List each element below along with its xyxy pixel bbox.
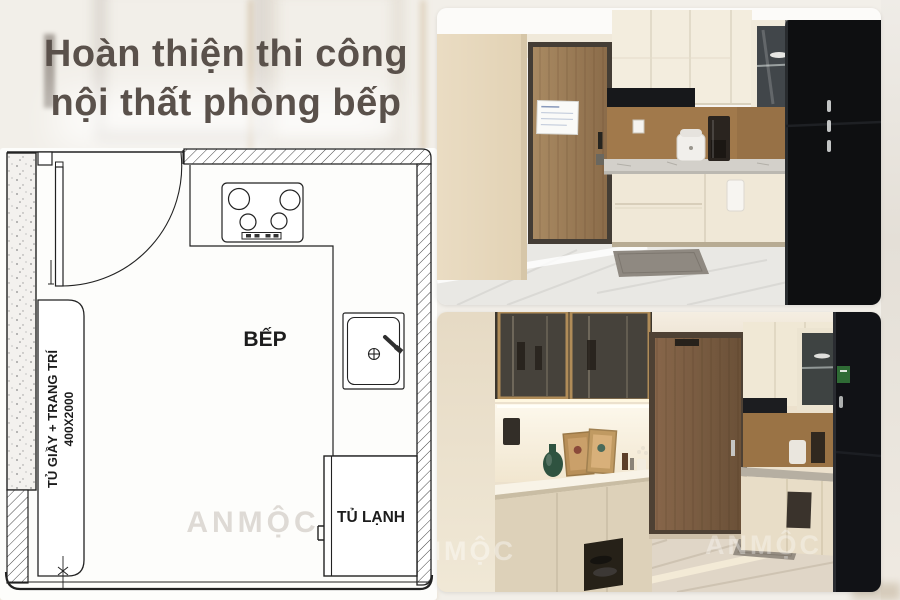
bottle-silhouette: [535, 346, 542, 370]
door-swing-arc: [62, 153, 182, 286]
range-hood: [607, 88, 695, 107]
range-hood: [743, 398, 787, 413]
right-hatched-wall: [417, 164, 431, 585]
fridge-handle: [839, 396, 843, 408]
cabinet-dimension-label: 400X2000: [62, 391, 76, 446]
photo-watermark-right: ANMỘC: [705, 529, 822, 560]
glass-door: [571, 312, 649, 400]
page-title: Hoàn thiện thi công nội thất phòng bếp: [0, 30, 452, 129]
photo-kitchen-entrance: [437, 8, 881, 305]
fridge-label: TỦ LẠNH: [337, 508, 405, 526]
floor-plan-drawing: BẾP TỦ LẠNH TỦ GIẦY + TRANG TRÍ 400X2000…: [0, 148, 437, 600]
fridge-handle: [827, 120, 831, 132]
photo-watermark-left: ANMỘC: [437, 535, 516, 566]
door-leaf: [56, 167, 64, 286]
plan-watermark: ANMỘC: [186, 505, 319, 539]
led-strip: [497, 405, 650, 408]
title-line-1: Hoàn thiện thi công: [0, 30, 452, 79]
shoe-alcove: [584, 538, 623, 591]
decor-bottle: [622, 453, 628, 470]
floor-plan-panel: BẾP TỦ LẠNH TỦ GIẦY + TRANG TRÍ 400X2000…: [0, 148, 437, 600]
glass-door: [499, 312, 567, 398]
photo-kitchen-hallway-scene: ANMỘC ANMỘC: [437, 312, 881, 592]
left-hatched-wall: [7, 490, 28, 583]
display-cabinet-glass: [495, 312, 652, 402]
left-concrete-wall: [7, 153, 36, 490]
hand-towel: [727, 180, 744, 211]
countertop: [604, 159, 809, 175]
hanging-cloth: [786, 492, 811, 529]
top-hatched-wall: [184, 149, 431, 164]
floor-mat: [613, 249, 709, 277]
stove-icon: [222, 183, 303, 242]
door-grain: [655, 338, 741, 530]
fridge-handle: [827, 100, 831, 112]
title-line-2: nội thất phòng bếp: [0, 79, 452, 128]
sink-icon: [343, 313, 404, 389]
rice-cooker: [677, 129, 705, 161]
door-hinge: [56, 162, 64, 167]
fridge-handle: [827, 140, 831, 152]
refrigerator: [833, 312, 881, 592]
entry-door: [48, 150, 183, 286]
door-closer: [675, 339, 699, 346]
bottle-silhouette: [517, 342, 525, 370]
left-wall: [437, 34, 527, 280]
cabinet-label: TỦ GIẦY + TRANG TRÍ: [45, 350, 60, 488]
door-grain: [533, 47, 607, 239]
decor-bottle: [630, 458, 634, 470]
refrigerator: [785, 20, 881, 305]
photo-kitchen-hallway: ANMỘC ANMỘC: [437, 312, 881, 592]
door-lock: [596, 154, 604, 165]
display-niche: [495, 404, 652, 482]
room-label: BẾP: [243, 328, 286, 351]
hall-door: [649, 332, 747, 539]
background-right-strip: [881, 0, 900, 600]
picture-frame: [587, 429, 617, 474]
left-wall-edge: [521, 34, 527, 280]
photo-kitchen-entrance-scene: [437, 8, 881, 305]
door-jamb: [38, 152, 52, 165]
door-handle: [598, 132, 603, 149]
outlet: [633, 120, 644, 133]
door-notice-paper: [537, 100, 579, 134]
wall-switch: [503, 418, 520, 445]
poster-canvas: Hoàn thiện thi công nội thất phòng bếp: [0, 0, 900, 600]
led-strip: [495, 399, 652, 402]
plate: [814, 354, 830, 359]
door-handle: [731, 440, 735, 456]
shoe-cabinet-base: [495, 469, 652, 592]
coffee-maker: [708, 116, 730, 161]
bottle-silhouette: [587, 340, 596, 370]
entrance-door: [528, 42, 614, 244]
base-cabinets: [612, 174, 809, 247]
energy-label: [837, 366, 850, 383]
